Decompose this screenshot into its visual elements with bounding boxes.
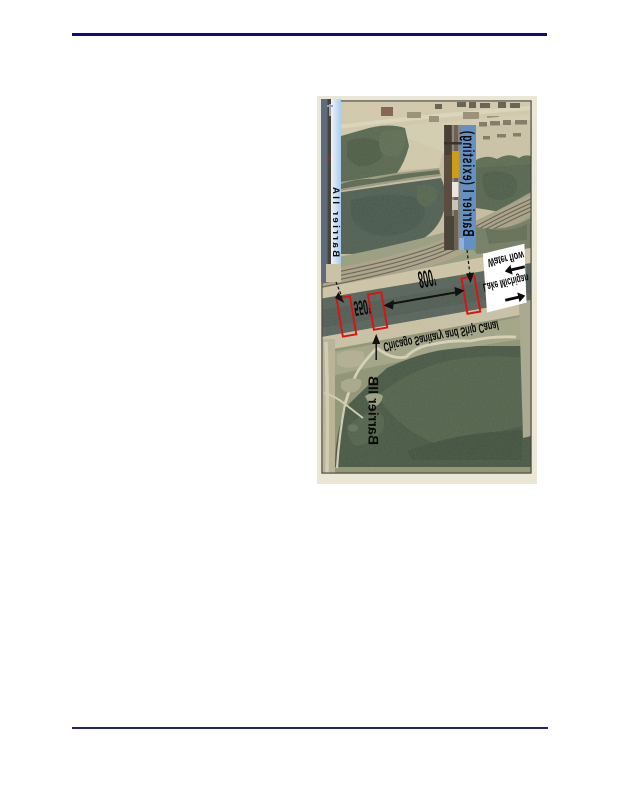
svg-text:Barrier IIB: Barrier IIB (366, 376, 382, 445)
svg-text:Barrier I (existing): Barrier I (existing) (459, 131, 476, 237)
svg-text:Barrier IIA: Barrier IIA (330, 187, 341, 257)
